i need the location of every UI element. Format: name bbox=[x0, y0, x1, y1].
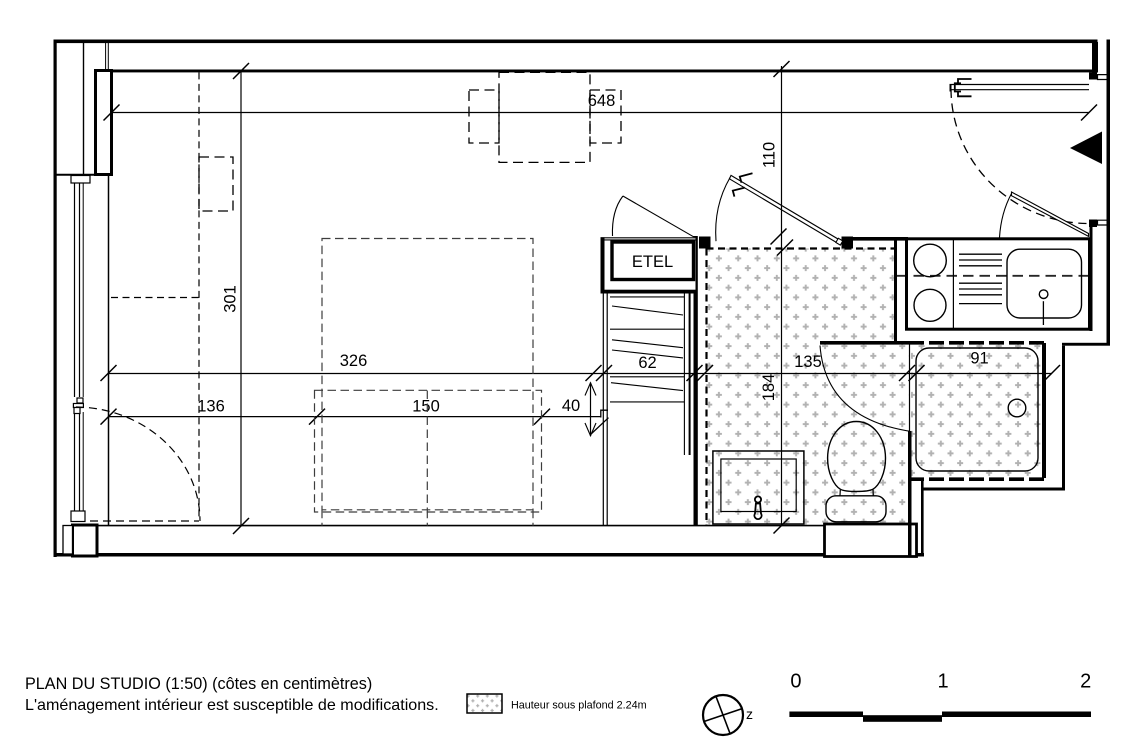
svg-text:648: 648 bbox=[588, 92, 616, 110]
svg-text:301: 301 bbox=[222, 285, 240, 313]
svg-text:184: 184 bbox=[760, 374, 778, 402]
svg-text:91: 91 bbox=[970, 350, 988, 368]
svg-text:Hauteur sous plafond 2.24m: Hauteur sous plafond 2.24m bbox=[511, 700, 647, 712]
svg-text:326: 326 bbox=[340, 352, 368, 370]
svg-text:62: 62 bbox=[638, 354, 656, 372]
svg-text:136: 136 bbox=[197, 398, 225, 416]
svg-text:PLAN DU STUDIO (1:50) (côtes e: PLAN DU STUDIO (1:50) (côtes en centimèt… bbox=[25, 675, 372, 693]
svg-text:L'aménagement intérieur est su: L'aménagement intérieur est susceptible … bbox=[25, 696, 439, 714]
svg-text:150: 150 bbox=[412, 398, 440, 416]
svg-text:2: 2 bbox=[1080, 671, 1091, 693]
svg-text:135: 135 bbox=[794, 353, 822, 371]
svg-text:40: 40 bbox=[562, 397, 580, 415]
svg-text:0: 0 bbox=[790, 671, 801, 693]
svg-text:110: 110 bbox=[761, 142, 779, 168]
svg-text:z: z bbox=[746, 706, 753, 722]
svg-text:ETEL: ETEL bbox=[632, 253, 673, 271]
svg-text:1: 1 bbox=[937, 671, 948, 693]
